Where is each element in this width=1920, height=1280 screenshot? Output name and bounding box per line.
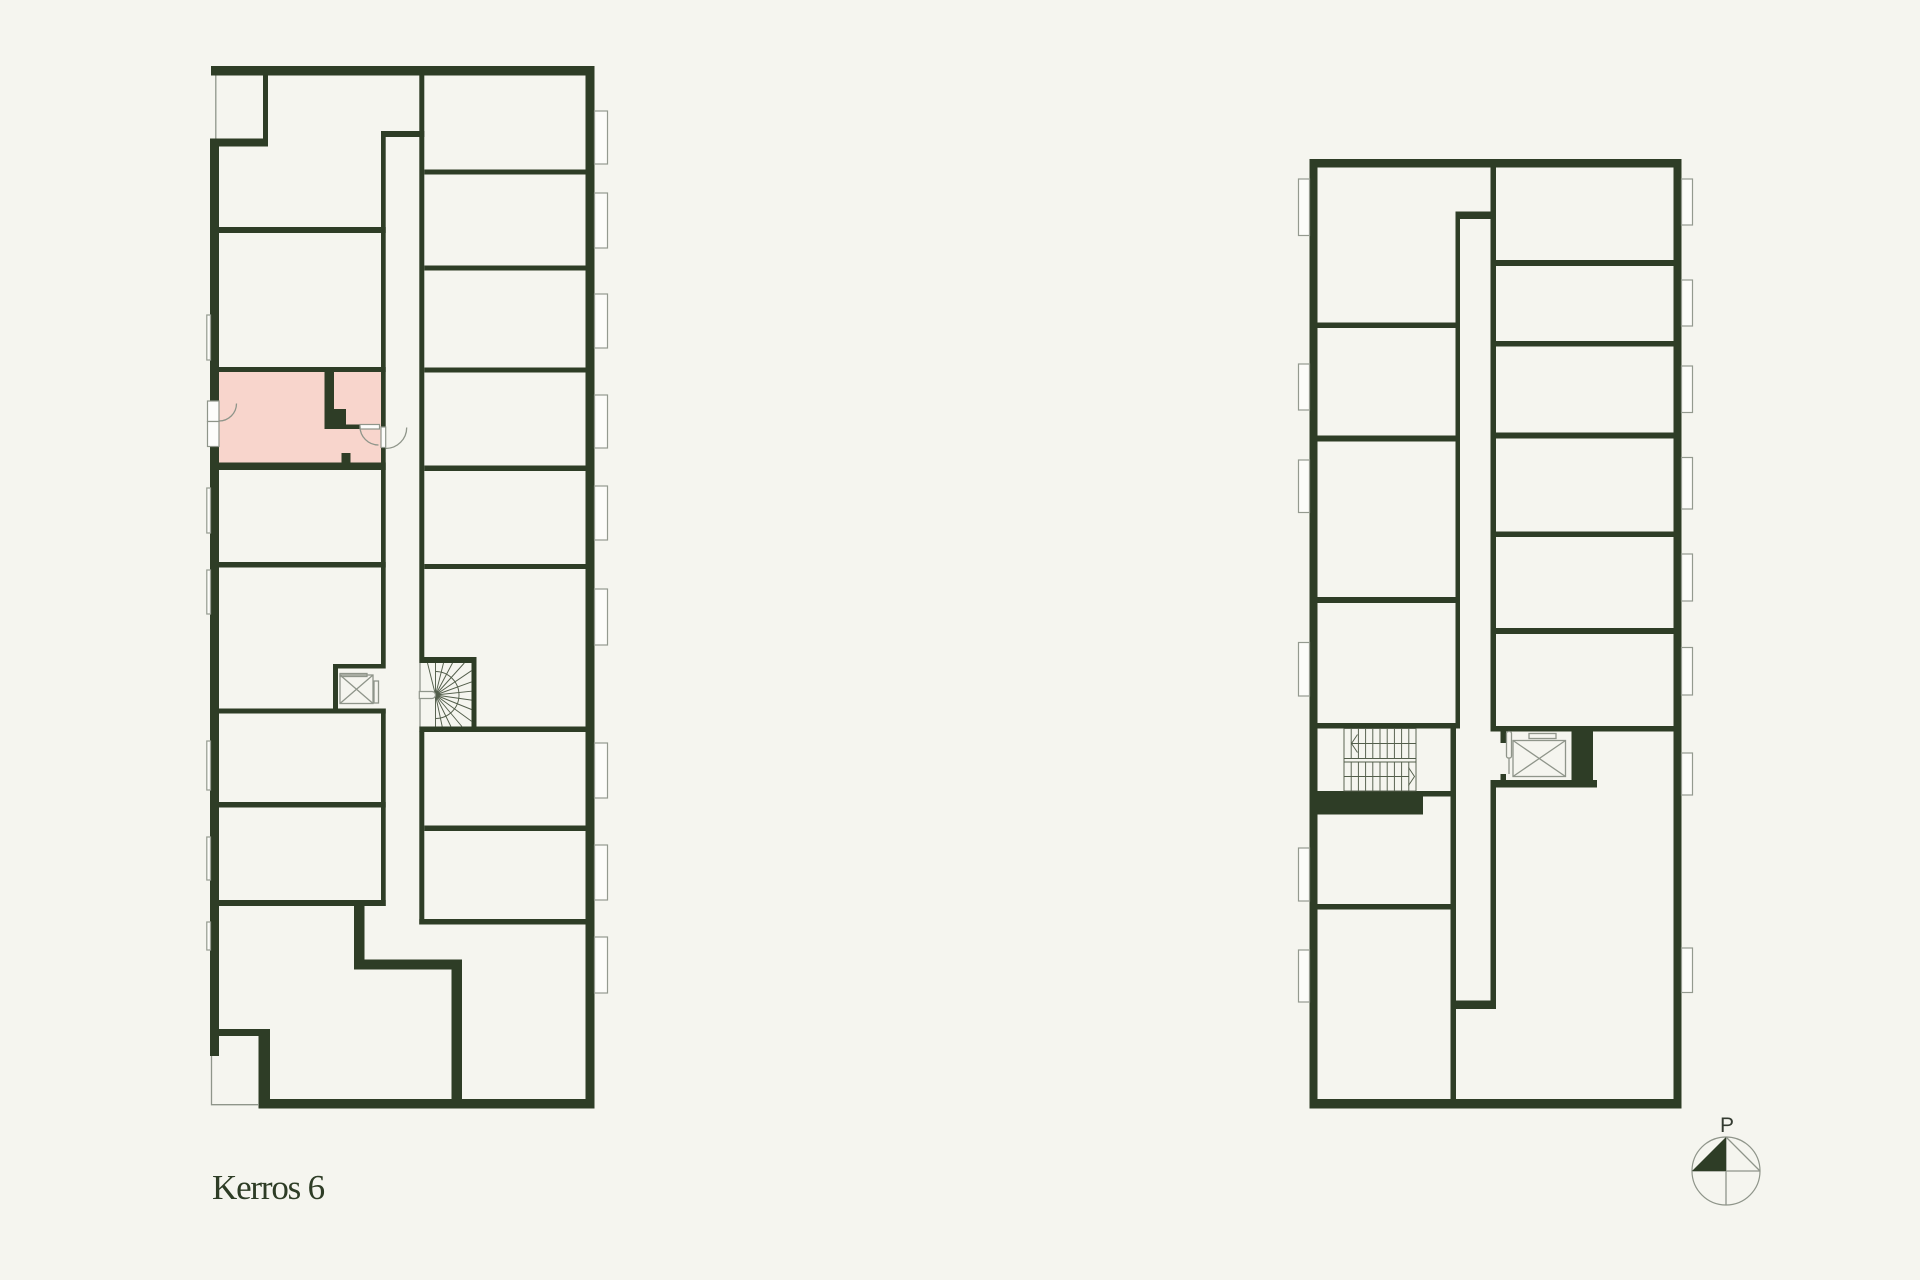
- svg-text:P: P: [1720, 1114, 1734, 1137]
- svg-text:Kerros 6: Kerros 6: [212, 1168, 325, 1207]
